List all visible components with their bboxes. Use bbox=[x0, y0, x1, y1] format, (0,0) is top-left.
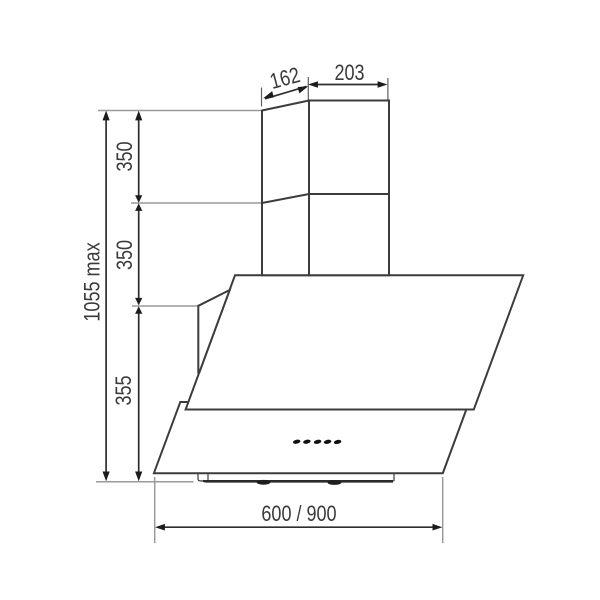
svg-text:350: 350 bbox=[113, 141, 137, 171]
svg-text:1055 max: 1055 max bbox=[81, 242, 105, 321]
svg-text:600 / 900: 600 / 900 bbox=[261, 502, 336, 526]
svg-text:355: 355 bbox=[112, 375, 136, 405]
svg-text:203: 203 bbox=[334, 61, 364, 85]
svg-text:350: 350 bbox=[113, 240, 137, 270]
